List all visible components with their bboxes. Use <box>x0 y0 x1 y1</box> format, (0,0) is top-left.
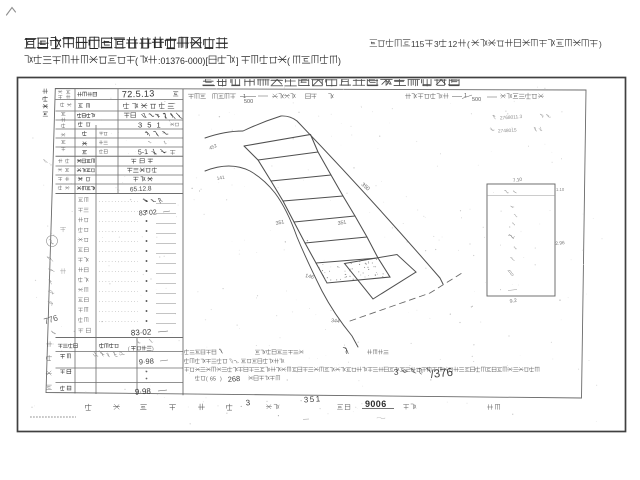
svg-text:776: 776 <box>43 312 60 326</box>
svg-text:65: 65 <box>210 377 216 383</box>
svg-text:351: 351 <box>337 220 347 227</box>
svg-text:83·02: 83·02 <box>139 209 157 217</box>
svg-text:72.5.13: 72.5.13 <box>122 88 155 99</box>
svg-text:9.2: 9.2 <box>509 298 517 305</box>
svg-text:83·02: 83·02 <box>131 327 152 337</box>
svg-text:9·98: 9·98 <box>135 387 152 397</box>
svg-text:(: ( <box>135 56 138 66</box>
svg-text:1.10: 1.10 <box>556 187 565 192</box>
svg-text:3: 3 <box>245 398 251 407</box>
svg-text:7.10: 7.10 <box>512 177 522 184</box>
svg-text:2768011.3: 2768011.3 <box>500 114 523 122</box>
svg-text:65.12.8: 65.12.8 <box>130 185 152 193</box>
svg-text:): ) <box>220 377 222 383</box>
svg-text:9·98: 9·98 <box>139 356 155 366</box>
svg-text:500: 500 <box>244 99 253 105</box>
svg-text:2748015: 2748015 <box>498 128 517 135</box>
svg-text:351: 351 <box>275 219 285 227</box>
svg-text:12: 12 <box>448 39 458 49</box>
svg-text:2.96: 2.96 <box>555 240 565 247</box>
svg-text:(: ( <box>467 39 470 49</box>
svg-text:1: 1 <box>464 93 467 99</box>
svg-text:]: ] <box>236 56 238 66</box>
svg-text:(: ( <box>287 56 290 66</box>
svg-text:350: 350 <box>360 182 371 193</box>
svg-text:141: 141 <box>216 175 225 182</box>
svg-text:3 5 1: 3 5 1 <box>138 121 162 130</box>
svg-text:5-1: 5-1 <box>138 149 149 157</box>
svg-text:452: 452 <box>208 143 218 152</box>
svg-text:3: 3 <box>393 367 399 377</box>
svg-text:/376: /376 <box>430 367 454 381</box>
svg-text:(: ( <box>206 377 208 383</box>
svg-text:500: 500 <box>472 97 481 103</box>
svg-text:146: 146 <box>305 273 315 281</box>
svg-text:115: 115 <box>411 39 425 49</box>
svg-text:): ) <box>599 39 602 49</box>
svg-text:351: 351 <box>304 394 322 404</box>
svg-text:268: 268 <box>227 374 240 384</box>
svg-text:344: 344 <box>331 318 340 325</box>
svg-text:3: 3 <box>434 39 439 49</box>
svg-text:9006: 9006 <box>365 399 387 409</box>
svg-text:): ) <box>338 56 341 66</box>
svg-text::01376-000)[: :01376-000)[ <box>158 56 208 66</box>
